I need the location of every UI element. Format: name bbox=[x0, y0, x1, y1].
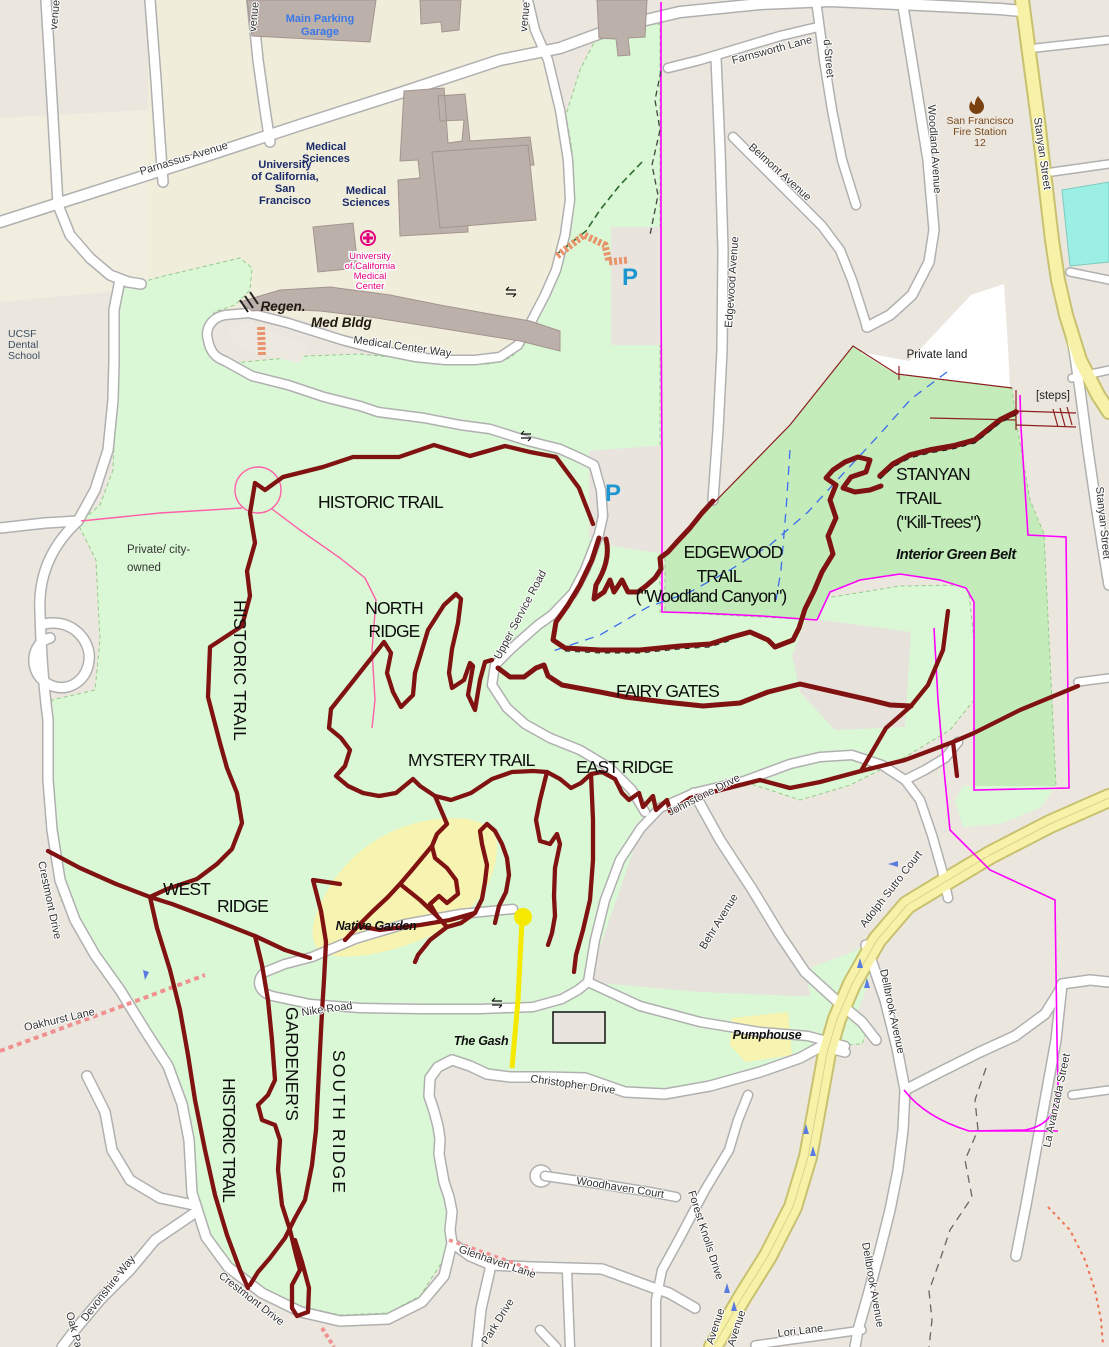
svg-text:RIDGE: RIDGE bbox=[217, 896, 268, 916]
svg-text:Main Parking: Main Parking bbox=[286, 13, 354, 25]
svg-text:GARDENER'S: GARDENER'S bbox=[282, 1007, 302, 1120]
svg-text:Private/ city-: Private/ city- bbox=[127, 544, 190, 556]
svg-text:("Woodland Canyon"): ("Woodland Canyon") bbox=[636, 586, 787, 606]
svg-text:Francisco: Francisco bbox=[259, 195, 311, 207]
svg-text:EAST RIDGE: EAST RIDGE bbox=[576, 757, 673, 777]
svg-text:Medical: Medical bbox=[346, 185, 386, 197]
svg-text:Private land: Private land bbox=[907, 349, 968, 361]
svg-text:SOUTH RIDGE: SOUTH RIDGE bbox=[329, 1050, 349, 1192]
svg-text:Medical: Medical bbox=[306, 141, 346, 153]
svg-text:TRAIL: TRAIL bbox=[896, 488, 942, 508]
svg-text:TRAIL: TRAIL bbox=[696, 566, 742, 586]
svg-text:12: 12 bbox=[974, 137, 986, 149]
svg-text:WEST: WEST bbox=[163, 879, 211, 899]
svg-text:EDGEWOOD: EDGEWOOD bbox=[684, 542, 783, 562]
svg-text:[steps]: [steps] bbox=[1036, 390, 1070, 402]
svg-text:FAIRY GATES: FAIRY GATES bbox=[616, 681, 719, 701]
svg-text:NORTH: NORTH bbox=[365, 598, 423, 618]
svg-text:Garage: Garage bbox=[301, 26, 339, 38]
svg-text:Sciences: Sciences bbox=[302, 153, 350, 165]
svg-text:P: P bbox=[622, 264, 638, 291]
svg-text:Sciences: Sciences bbox=[342, 197, 390, 209]
svg-text:Native Garden: Native Garden bbox=[336, 919, 418, 933]
svg-text:HISTORIC TRAIL: HISTORIC TRAIL bbox=[318, 492, 444, 512]
svg-text:owned: owned bbox=[127, 562, 161, 574]
svg-text:of California,: of California, bbox=[251, 171, 318, 183]
svg-text:RIDGE: RIDGE bbox=[369, 621, 420, 641]
svg-text:HISTORIC TRAIL: HISTORIC TRAIL bbox=[230, 600, 250, 741]
svg-text:("Kill-Trees"): ("Kill-Trees") bbox=[896, 512, 981, 532]
svg-text:Med Bldg: Med Bldg bbox=[311, 315, 372, 330]
svg-text:MYSTERY TRAIL: MYSTERY TRAIL bbox=[408, 750, 536, 770]
svg-text:Interior Green Belt: Interior Green Belt bbox=[896, 547, 1017, 563]
svg-text:Regen.: Regen. bbox=[260, 299, 305, 314]
svg-text:San: San bbox=[275, 183, 295, 195]
svg-text:School: School bbox=[8, 350, 40, 362]
svg-text:P: P bbox=[605, 480, 621, 507]
svg-text:Pumphouse: Pumphouse bbox=[733, 1028, 802, 1042]
svg-text:The Gash: The Gash bbox=[454, 1034, 509, 1048]
svg-text:HISTORIC TRAIL: HISTORIC TRAIL bbox=[219, 1078, 239, 1203]
svg-text:STANYAN: STANYAN bbox=[896, 464, 970, 484]
svg-text:Center: Center bbox=[356, 281, 385, 292]
